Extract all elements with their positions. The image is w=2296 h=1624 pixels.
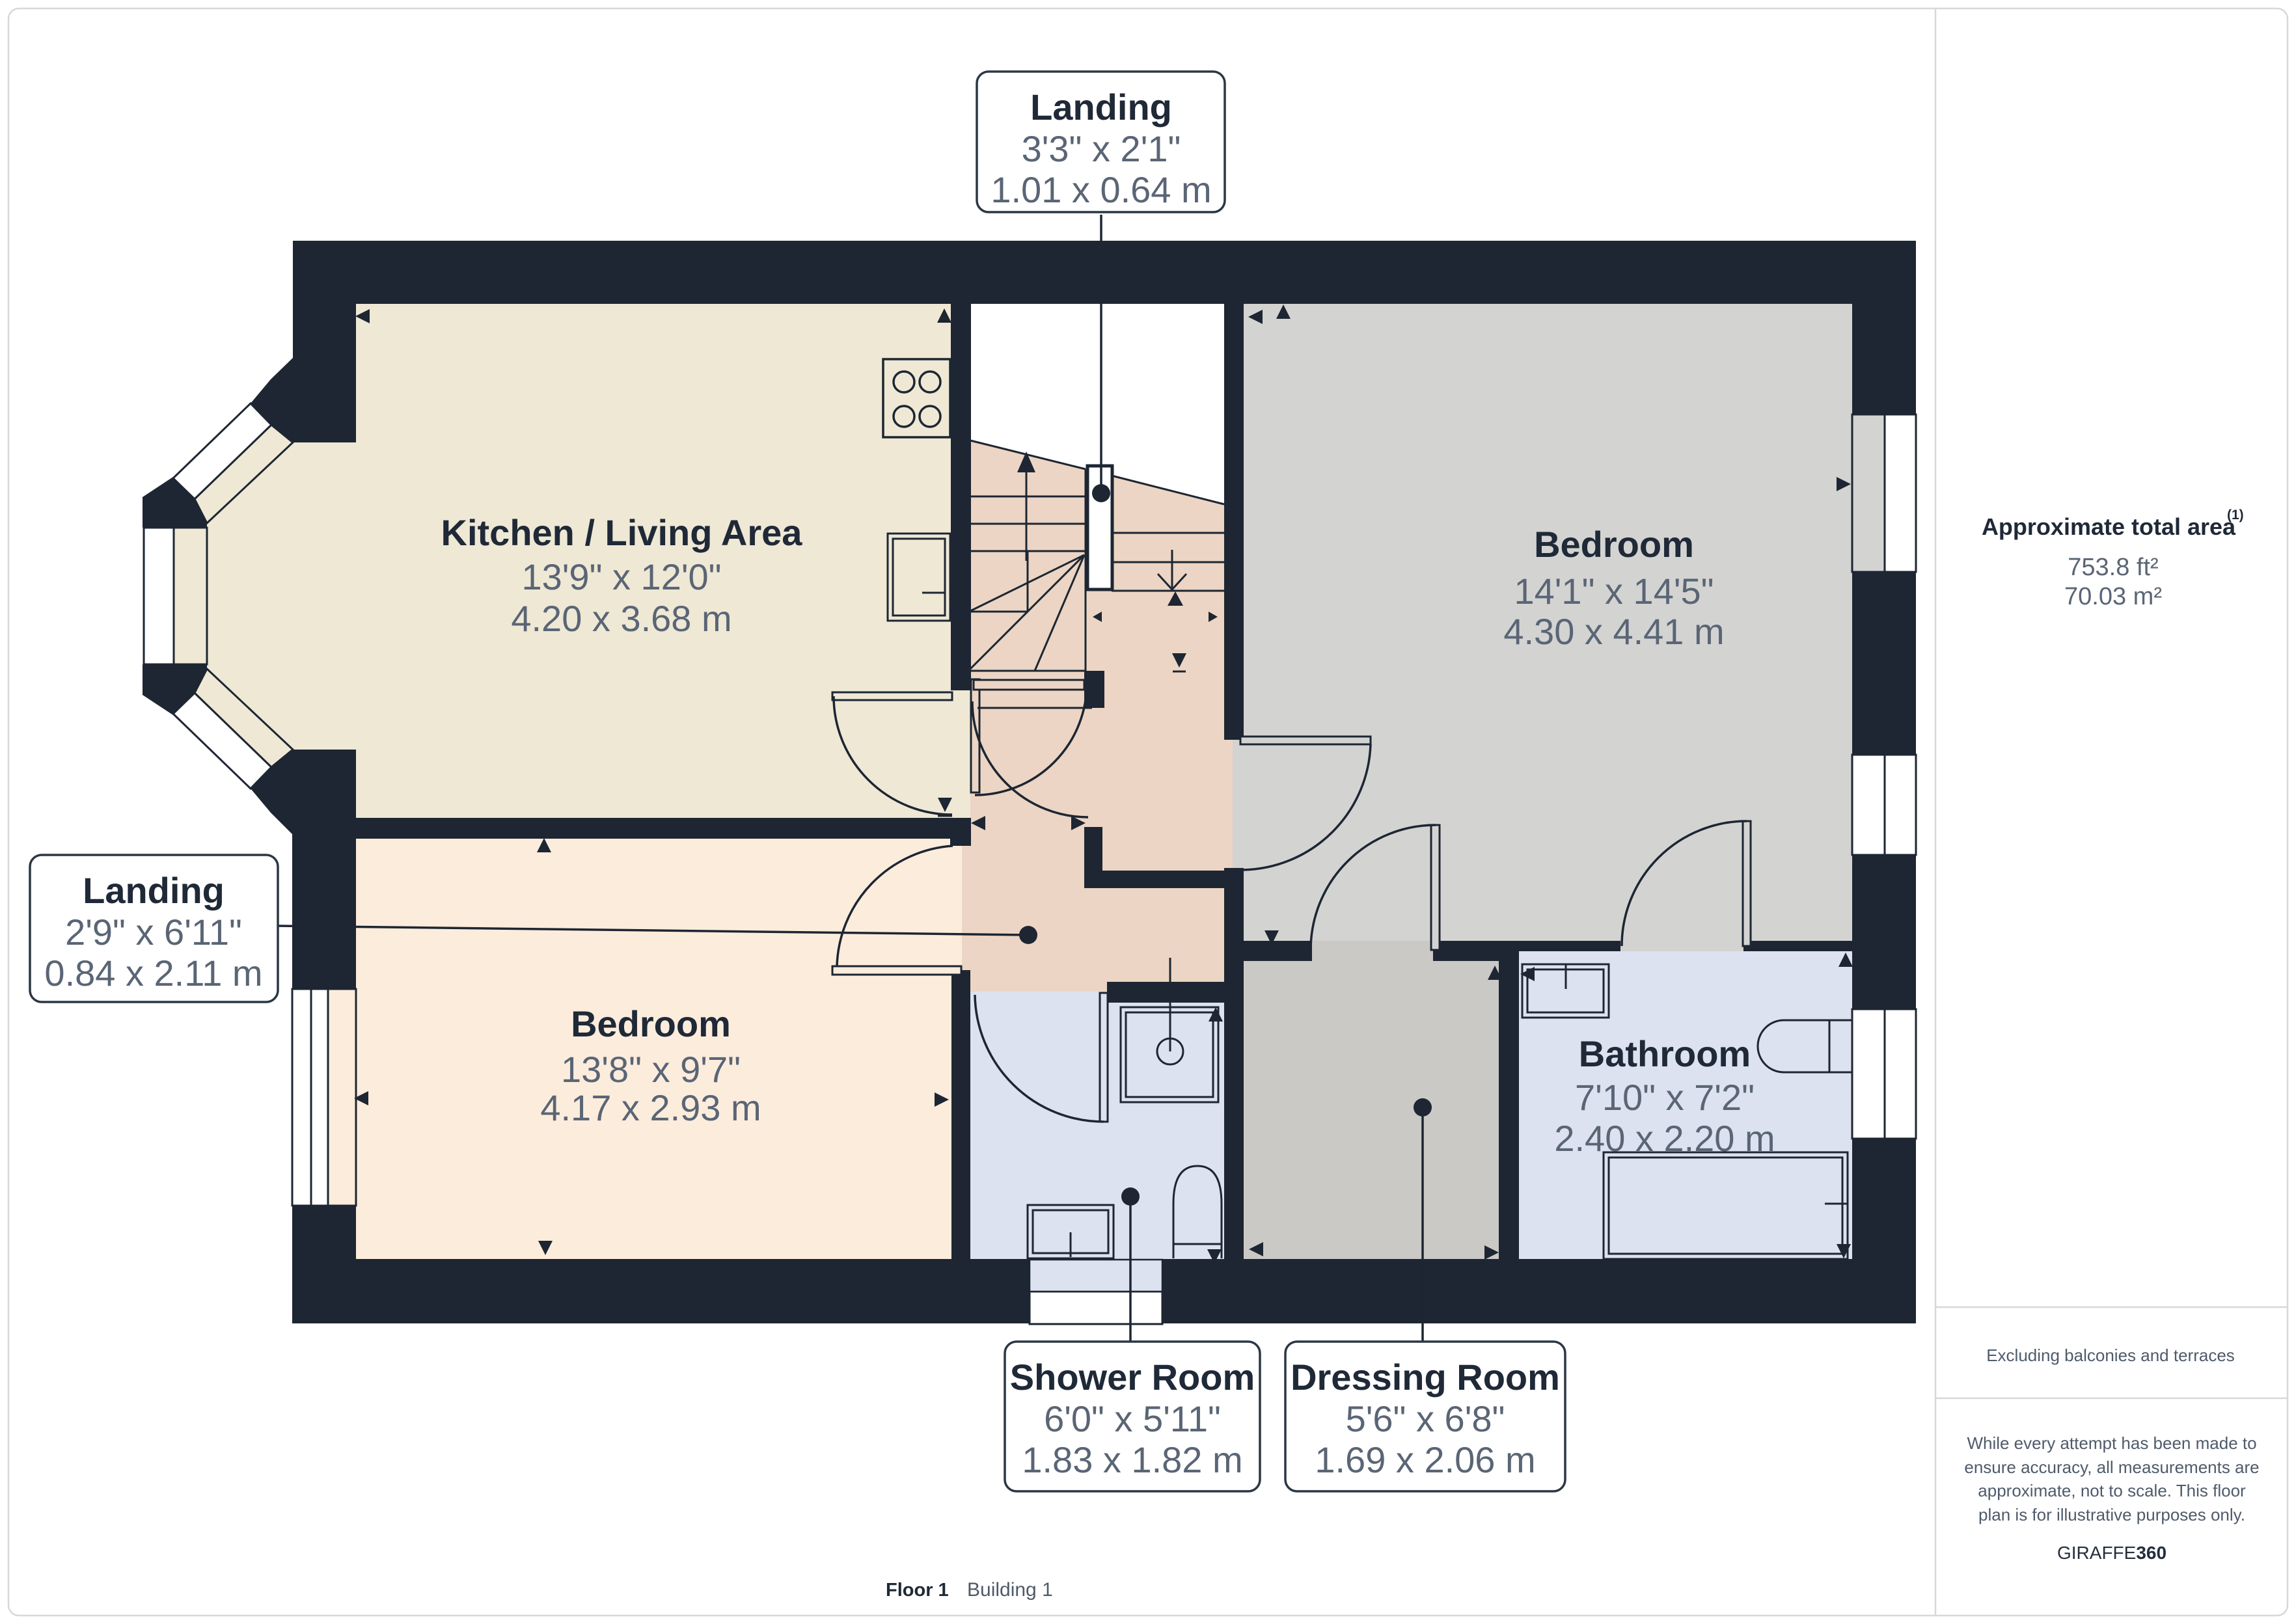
svg-text:0.84 x 2.11 m: 0.84 x 2.11 m [44, 953, 262, 994]
svg-text:Bedroom: Bedroom [571, 1003, 731, 1044]
svg-text:Dressing Room: Dressing Room [1291, 1357, 1560, 1398]
svg-text:Floor 1: Floor 1 [886, 1580, 949, 1601]
svg-text:5'6" x 6'8": 5'6" x 6'8" [1346, 1398, 1505, 1439]
svg-text:7'10" x 7'2": 7'10" x 7'2" [1575, 1077, 1755, 1118]
svg-text:Bedroom: Bedroom [1534, 524, 1694, 565]
svg-text:1.69 x 2.06 m: 1.69 x 2.06 m [1315, 1439, 1535, 1480]
svg-text:Shower Room: Shower Room [1010, 1357, 1255, 1398]
svg-text:Kitchen / Living Area: Kitchen / Living Area [441, 512, 803, 553]
svg-text:(1): (1) [2227, 507, 2244, 522]
svg-text:4.20 x 3.68 m: 4.20 x 3.68 m [511, 598, 731, 639]
svg-text:Bathroom: Bathroom [1579, 1033, 1751, 1074]
svg-text:approximate, not to scale. Thi: approximate, not to scale. This floor [1978, 1481, 2246, 1500]
svg-text:GIRAFFE360: GIRAFFE360 [2057, 1543, 2166, 1563]
svg-text:13'9" x 12'0": 13'9" x 12'0" [521, 556, 721, 597]
svg-text:13'8" x 9'7": 13'8" x 9'7" [561, 1049, 741, 1090]
svg-text:2.40 x 2.20 m: 2.40 x 2.20 m [1554, 1118, 1775, 1159]
svg-text:Building 1: Building 1 [967, 1579, 1053, 1601]
svg-text:Landing: Landing [83, 870, 225, 911]
svg-text:6'0" x 5'11": 6'0" x 5'11" [1044, 1398, 1221, 1439]
svg-text:14'1" x 14'5": 14'1" x 14'5" [1514, 571, 1714, 612]
svg-text:70.03 m²: 70.03 m² [2064, 583, 2162, 610]
svg-text:While every attempt has been m: While every attempt has been made to [1967, 1433, 2256, 1453]
svg-text:ensure accuracy, all measureme: ensure accuracy, all measurements are [1964, 1457, 2259, 1477]
svg-text:Landing: Landing [1030, 87, 1172, 128]
svg-text:3'3" x 2'1": 3'3" x 2'1" [1022, 128, 1181, 169]
svg-text:2'9" x 6'11": 2'9" x 6'11" [65, 912, 242, 953]
svg-text:1.01 x 0.64 m: 1.01 x 0.64 m [991, 169, 1211, 210]
svg-text:Approximate total area: Approximate total area [1982, 513, 2236, 540]
svg-text:4.30 x 4.41 m: 4.30 x 4.41 m [1503, 611, 1724, 652]
svg-text:Excluding balconies and terrac: Excluding balconies and terraces [1986, 1346, 2235, 1365]
svg-text:1.83 x 1.82 m: 1.83 x 1.82 m [1022, 1439, 1242, 1480]
svg-text:plan is for illustrative purpo: plan is for illustrative purposes only. [1978, 1505, 2245, 1524]
svg-text:753.8 ft²: 753.8 ft² [2068, 554, 2158, 581]
svg-text:4.17 x 2.93 m: 4.17 x 2.93 m [540, 1087, 761, 1128]
